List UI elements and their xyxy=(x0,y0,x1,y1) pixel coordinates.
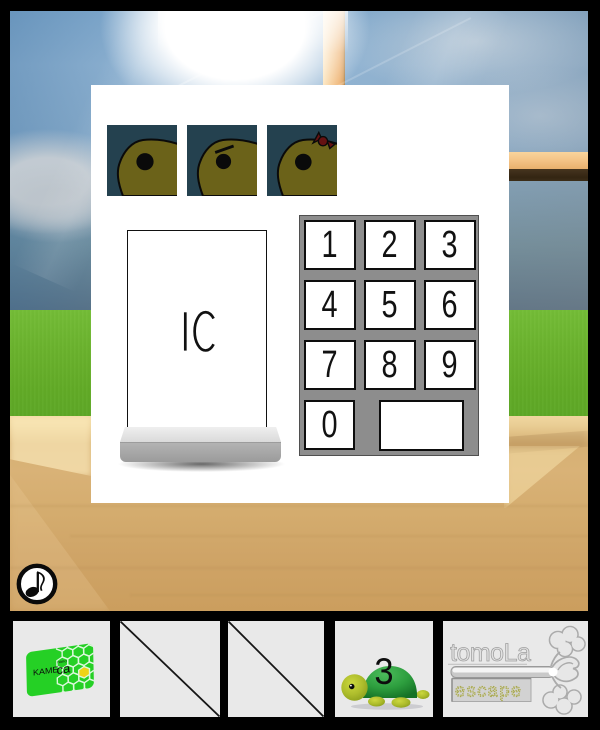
svg-text:escape: escape xyxy=(455,681,523,701)
svg-text:3: 3 xyxy=(374,650,393,693)
svg-text:tomoLa: tomoLa xyxy=(450,639,531,667)
